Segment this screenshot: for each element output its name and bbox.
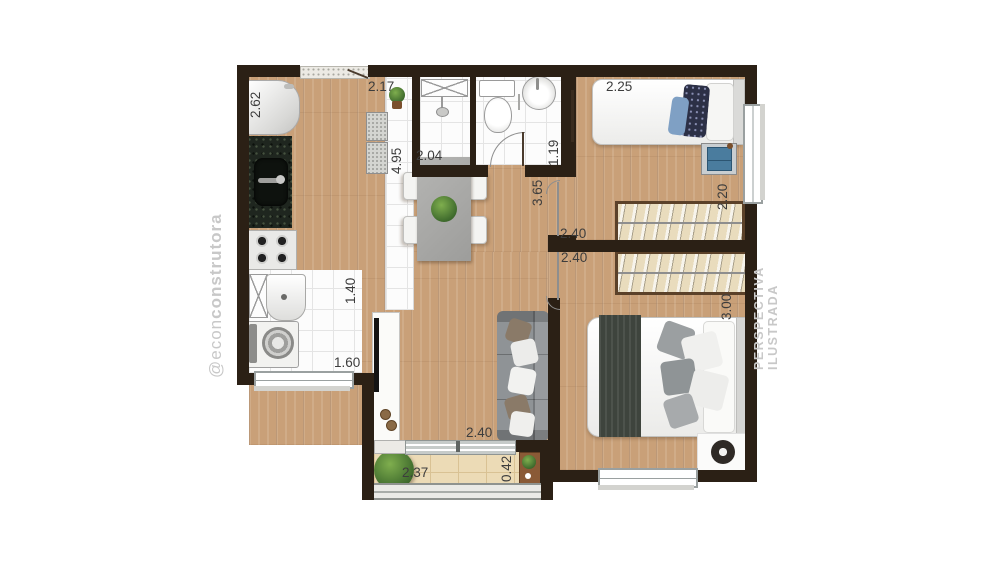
washing-machine-panel — [249, 324, 257, 363]
dining-centerpiece-plant — [431, 196, 457, 222]
balcony-sliding-door-handle — [456, 441, 460, 452]
hall-cabinet-upper — [366, 112, 388, 141]
watermark-builder-prefix: @econ — [206, 319, 225, 378]
bedroom2-decor-round — [711, 440, 735, 464]
laundry-tank-drain — [281, 294, 287, 300]
dim-entry-width: 2.17 — [368, 80, 394, 93]
hall-cabinet-lower — [366, 142, 388, 174]
window-laundry-sill — [254, 386, 350, 391]
nightstand-drawers — [707, 147, 732, 171]
dim-bedroom1-bed-wall: 2.25 — [606, 80, 632, 93]
bathroom-door-leaf — [522, 132, 524, 166]
bedroom1-door-leaf — [571, 90, 574, 142]
dim-laundry-depth: 1.40 — [344, 270, 357, 304]
window-bedroom1-sill — [760, 104, 765, 200]
dim-bedroom1-wardrobe-wall: 2.40 — [560, 227, 586, 240]
decor-item — [386, 420, 397, 431]
dim-balcony-width: 2.37 — [402, 466, 428, 479]
fridge-handle — [284, 84, 294, 89]
bathroom-sink-tap — [536, 78, 539, 90]
floor-plan-canvas: 2.62 2.17 4.95 2.04 1.19 3.65 2.25 2.20 … — [0, 0, 1000, 563]
balcony-railing — [374, 483, 541, 500]
dim-bedroom1-depth: 2.20 — [716, 176, 729, 210]
wall-bedrooms-divider — [561, 240, 757, 252]
dim-kitchen-living-length: 4.95 — [390, 140, 403, 174]
toilet-bowl — [484, 97, 512, 133]
wall-balcony-low — [374, 440, 407, 454]
dim-bedroom2-depth: 3.00 — [720, 286, 733, 320]
bedroom2-door-line — [557, 252, 559, 300]
bed-runner — [599, 315, 641, 437]
dim-bedroom2-wardrobe-wall: 2.40 — [561, 251, 587, 264]
window-bedroom2-sill — [598, 485, 694, 490]
wall-bathroom-bottom-left — [412, 165, 488, 177]
dim-laundry-width: 1.60 — [334, 356, 360, 369]
watermark-perspective: PERSPECTIVA ILUSTRADA — [752, 190, 780, 370]
watermark-builder-bold: construtora — [206, 213, 225, 318]
dim-living-width: 2.40 — [466, 426, 492, 439]
sofa-pillow — [508, 410, 535, 437]
dim-hall-length: 3.65 — [531, 172, 544, 206]
bathroom-hook — [518, 94, 520, 110]
wall-balcony-left — [362, 373, 374, 500]
dim-bathroom-width: 2.04 — [416, 149, 442, 162]
nightstand-handle — [727, 143, 733, 149]
bathroom-cabinet — [421, 79, 468, 97]
dim-balcony-counter-depth: 0.42 — [500, 450, 513, 482]
wall-shower-partition — [470, 77, 476, 165]
wall-slider-right-stub — [513, 440, 540, 452]
toilet-tank — [479, 80, 515, 97]
stove — [247, 230, 297, 270]
bed1-pillow-white — [706, 83, 734, 141]
kitchen-faucet-head — [276, 175, 285, 184]
washing-machine-drum — [262, 327, 294, 359]
bedroom1-door-line — [557, 182, 559, 236]
bathroom-sink — [522, 76, 556, 110]
sofa-pillow — [510, 338, 540, 368]
entry-plant-pot — [392, 101, 402, 109]
watermark-builder: @econconstrutora — [206, 138, 226, 378]
shower-head — [436, 107, 449, 117]
balcony-counter-plant — [522, 455, 536, 469]
decor-item — [380, 409, 391, 420]
wall-bedroom2-left — [548, 298, 560, 470]
sofa-pillow — [507, 366, 537, 396]
balcony-counter-cup — [525, 473, 531, 479]
dim-kitchen-fridge-wall: 2.62 — [249, 84, 262, 118]
tv — [374, 318, 379, 392]
dim-bathroom-depth: 1.19 — [547, 132, 560, 166]
